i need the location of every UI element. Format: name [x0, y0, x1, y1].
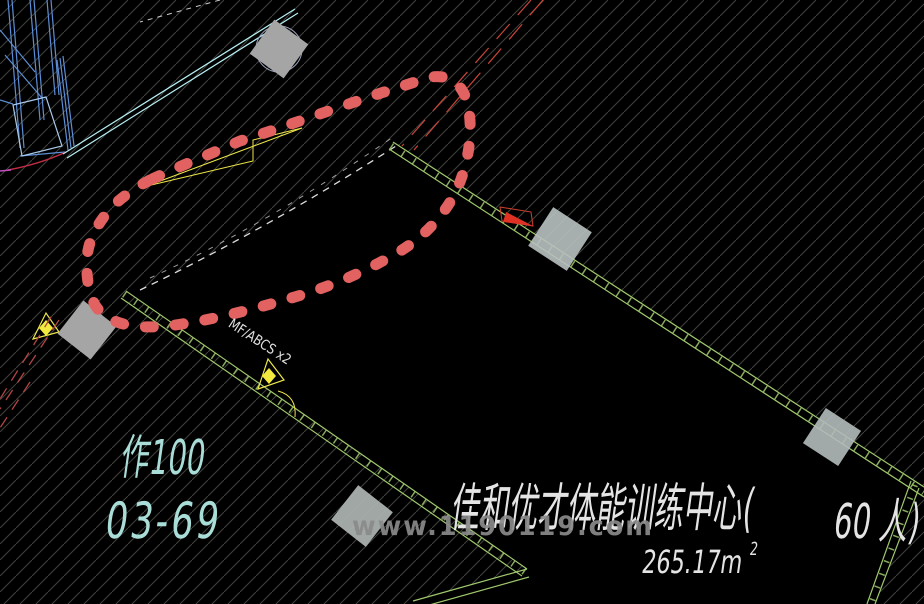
- room-capacity-label[interactable]: 60 人): [830, 482, 924, 552]
- room-area-label[interactable]: 265.17m2: [640, 543, 754, 581]
- cad-viewport: 佳和优才体能训练中心( 60 人) 265.17m2 作100 03-69 MF…: [0, 0, 924, 604]
- curb-line-magenta[interactable]: [0, 170, 11, 171]
- area-value: 265.17m: [640, 543, 746, 581]
- plan-code-line2[interactable]: 03-69: [102, 492, 226, 550]
- plan-code-line1[interactable]: 作100: [117, 418, 211, 488]
- watermark: www.1190119.com: [352, 511, 654, 542]
